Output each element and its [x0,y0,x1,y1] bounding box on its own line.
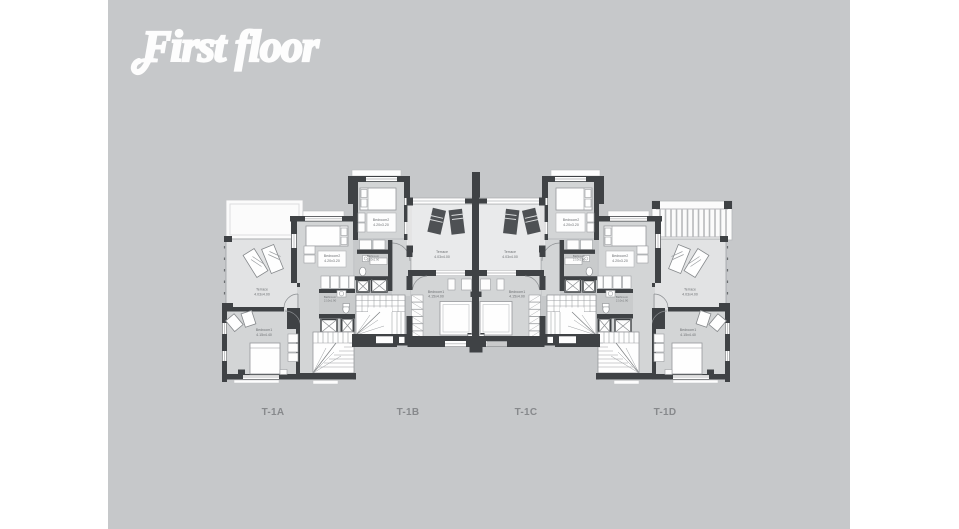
svg-text:Bedroom1: Bedroom1 [256,328,273,332]
svg-text:Terrace: Terrace [256,288,268,292]
svg-text:4.03x4.00: 4.03x4.00 [502,255,518,259]
svg-text:4.20x3.20: 4.20x3.20 [373,223,389,227]
svg-text:Terrace: Terrace [436,250,448,254]
svg-text:Bedroom2: Bedroom2 [373,218,390,222]
svg-text:4.20x3.20: 4.20x3.20 [324,259,340,263]
svg-text:4.20x3.20: 4.20x3.20 [563,223,579,227]
svg-text:T-1B: T-1B [397,407,420,418]
svg-text:Bedroom1: Bedroom1 [428,290,445,294]
svg-text:4.15x4.40: 4.15x4.40 [256,333,272,337]
svg-text:4.03x4.00: 4.03x4.00 [254,293,270,297]
svg-text:4.20x3.20: 4.20x3.20 [612,259,628,263]
svg-text:2.10x1.90: 2.10x1.90 [324,299,337,303]
svg-text:Bedroom2: Bedroom2 [563,218,580,222]
svg-text:4.15x4.00: 4.15x4.00 [428,295,444,299]
svg-text:T-1D: T-1D [654,407,677,418]
svg-text:2.10x1.90: 2.10x1.90 [367,258,380,262]
svg-text:4.15x4.40: 4.15x4.40 [680,333,696,337]
svg-text:2.10x1.90: 2.10x1.90 [573,258,586,262]
svg-text:4.15x4.00: 4.15x4.00 [509,295,525,299]
svg-text:Bedroom1: Bedroom1 [509,290,526,294]
svg-text:First floor: First floor [141,22,320,71]
svg-text:Terrace: Terrace [504,250,516,254]
svg-text:T-1A: T-1A [262,407,285,418]
svg-text:4.03x4.00: 4.03x4.00 [434,255,450,259]
svg-text:Bedroom2: Bedroom2 [612,254,629,258]
svg-text:Terrace: Terrace [684,288,696,292]
svg-text:4.03x4.00: 4.03x4.00 [682,293,698,297]
svg-text:T-1C: T-1C [515,407,538,418]
svg-text:Bedroom2: Bedroom2 [324,254,341,258]
svg-text:Bedroom1: Bedroom1 [680,328,697,332]
svg-text:2.10x1.90: 2.10x1.90 [616,299,629,303]
